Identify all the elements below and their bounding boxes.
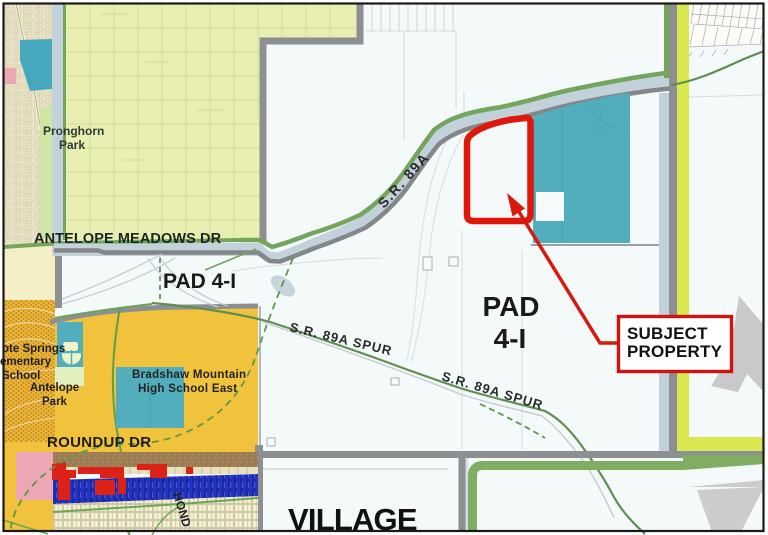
svg-text:Park: Park xyxy=(42,396,68,408)
svg-text:Park: Park xyxy=(59,138,85,152)
svg-text:Bradshaw Mountain: Bradshaw Mountain xyxy=(132,369,246,381)
svg-text:Antelope: Antelope xyxy=(30,382,79,394)
svg-text:PROPERTY: PROPERTY xyxy=(627,342,723,361)
svg-text:ote Springs: ote Springs xyxy=(2,343,65,355)
svg-text:ROUNDUP DR: ROUNDUP DR xyxy=(47,434,151,451)
svg-text:PAD 4-I: PAD 4-I xyxy=(163,270,236,293)
svg-text:ANTELOPE MEADOWS DR: ANTELOPE MEADOWS DR xyxy=(34,231,222,247)
svg-text:4-I: 4-I xyxy=(494,323,527,354)
svg-text:High School East: High School East xyxy=(138,383,237,395)
svg-text:Pronghorn: Pronghorn xyxy=(43,124,104,138)
svg-text:ementary: ementary xyxy=(0,356,52,368)
svg-text:PAD: PAD xyxy=(482,291,539,322)
svg-text:SUBJECT: SUBJECT xyxy=(627,324,708,343)
svg-text:School: School xyxy=(2,370,40,382)
